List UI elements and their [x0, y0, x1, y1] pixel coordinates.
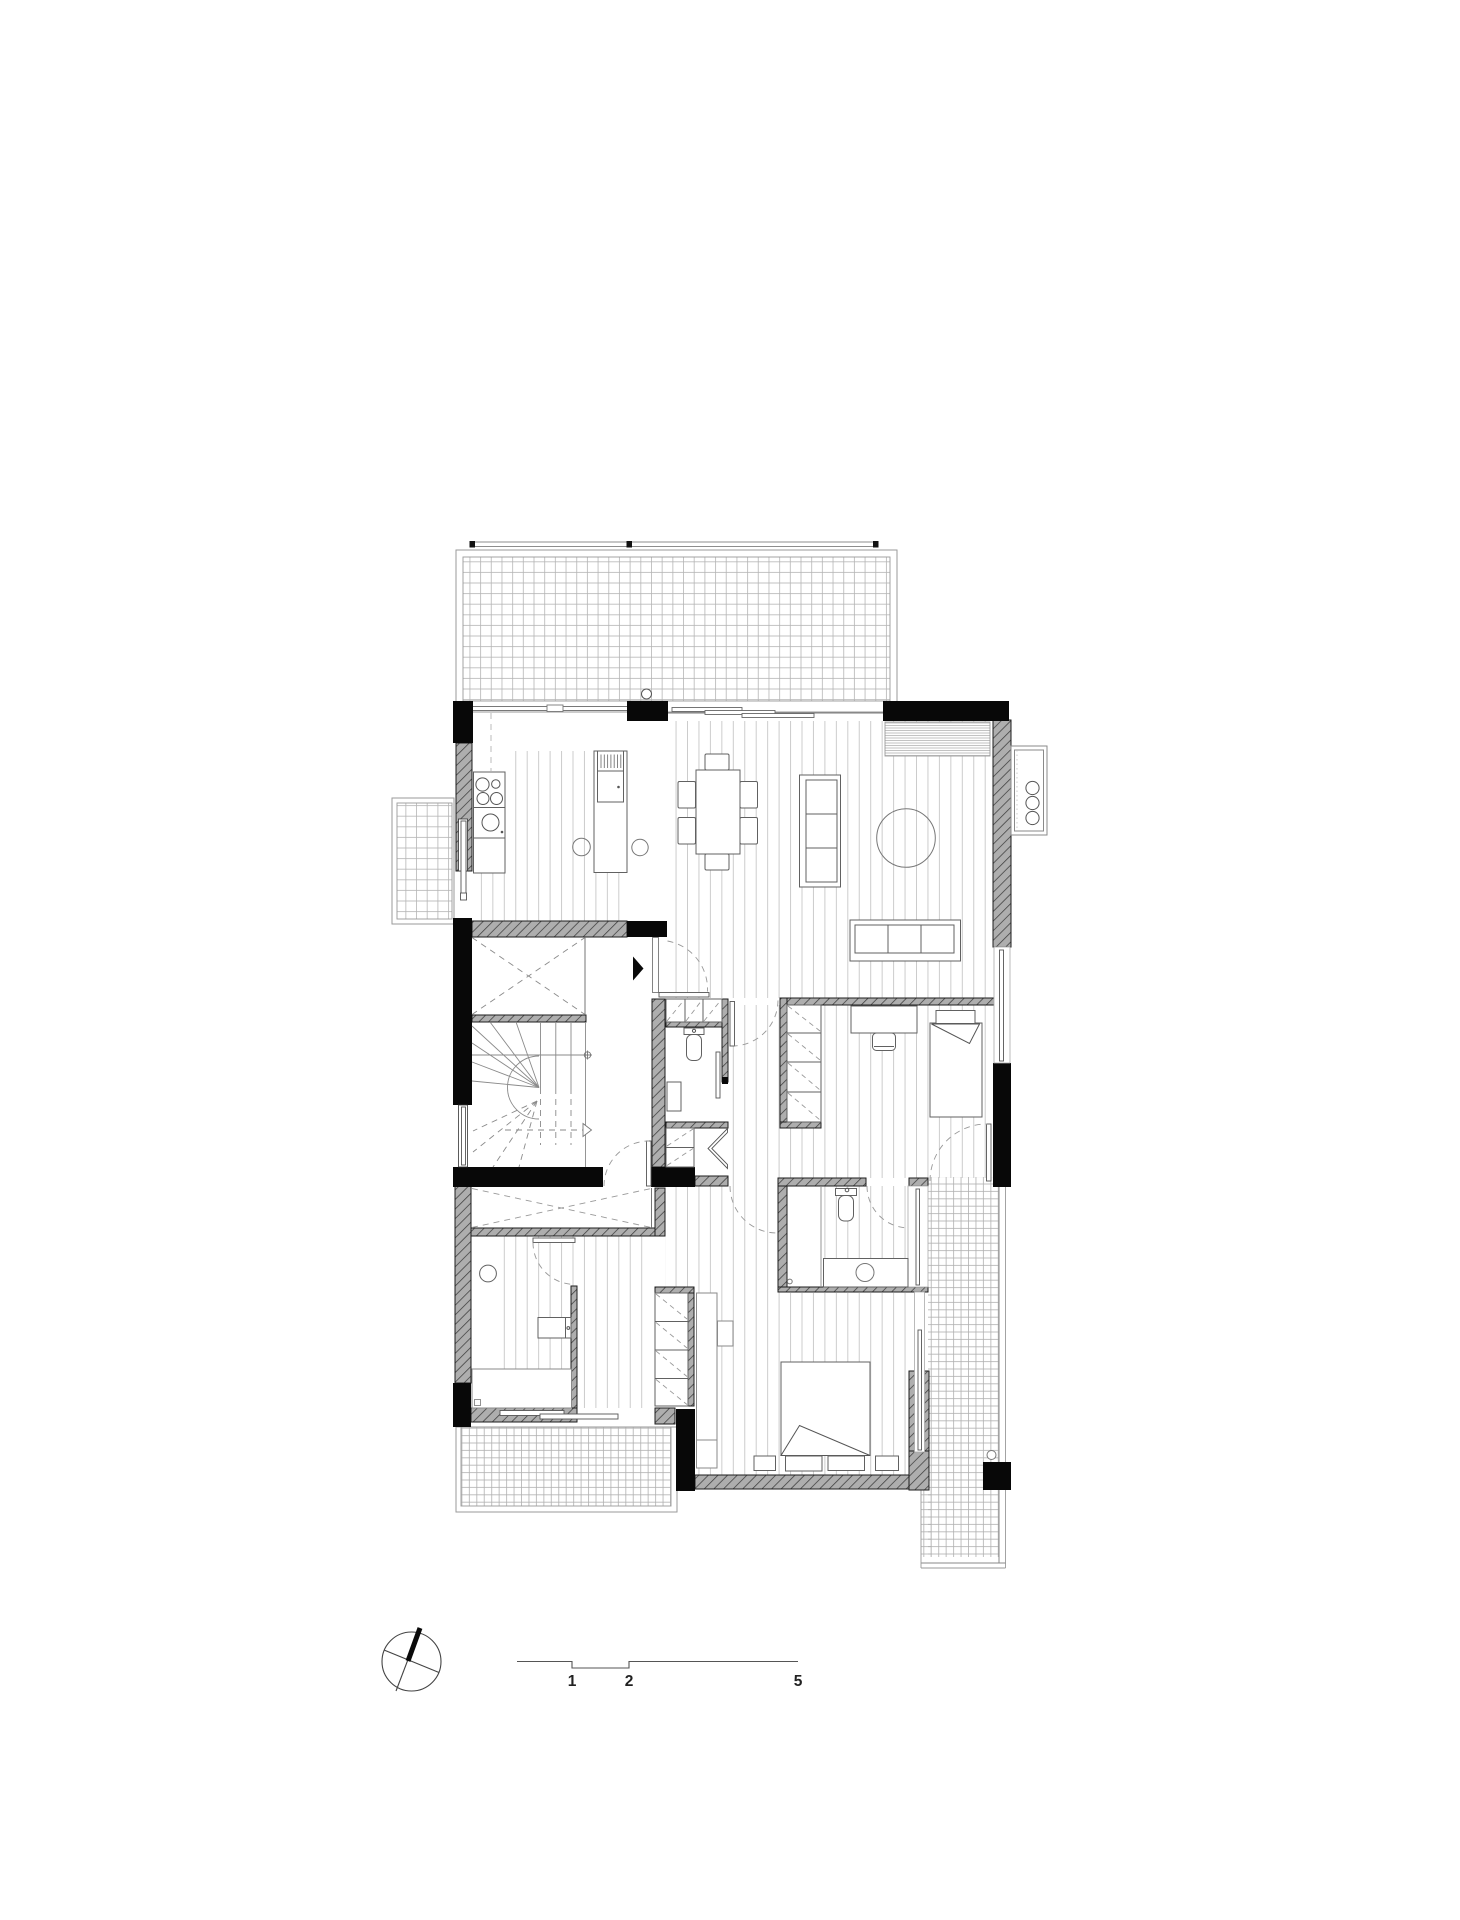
- svg-text:5: 5: [794, 1673, 803, 1690]
- svg-text:2: 2: [625, 1673, 634, 1690]
- svg-text:1: 1: [568, 1673, 577, 1690]
